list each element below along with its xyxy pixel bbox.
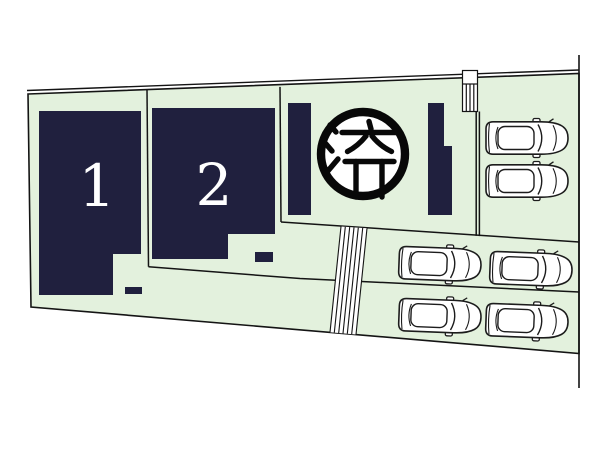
lot-layout-diagram: 1 2 済 bbox=[0, 0, 600, 449]
lot-1-number: 1 bbox=[79, 152, 116, 220]
site-plan-page: 済 bbox=[0, 0, 600, 449]
sold-seal: 済 bbox=[321, 112, 405, 197]
lot-2-number: 2 bbox=[196, 151, 233, 219]
entrance-steps-structure bbox=[463, 71, 478, 112]
lot-1-marker-dash bbox=[125, 287, 142, 294]
parked-car-2 bbox=[486, 162, 568, 201]
divider-lot2-lot3 bbox=[280, 87, 281, 222]
lot-3-building-left-wing bbox=[288, 103, 311, 215]
parked-car-1 bbox=[486, 119, 568, 158]
lot-2-marker-dash bbox=[255, 252, 273, 262]
